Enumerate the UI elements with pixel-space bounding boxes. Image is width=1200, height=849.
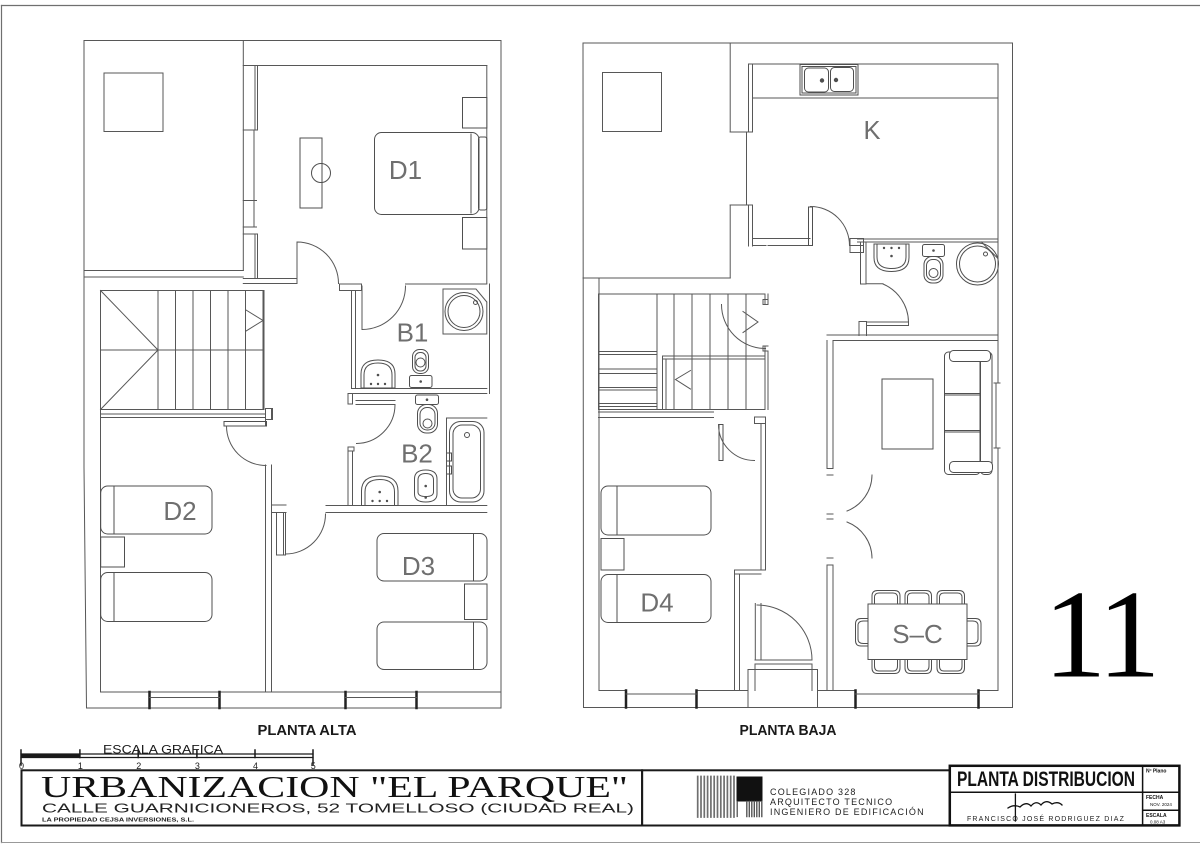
svg-text:0.08 A3: 0.08 A3	[1150, 820, 1166, 825]
svg-text:COLEGIADO 328: COLEGIADO 328	[770, 787, 857, 797]
svg-text:K: K	[863, 117, 880, 145]
svg-text:ARQUITECTO TECNICO: ARQUITECTO TECNICO	[770, 797, 893, 807]
svg-text:LA PROPIEDAD CEJSA INVERSIONE: LA PROPIEDAD CEJSA INVERSIONES, S.L.	[42, 818, 195, 824]
svg-text:ESCALA GRAFICA: ESCALA GRAFICA	[103, 743, 223, 757]
svg-text:PLANTA BAJA: PLANTA BAJA	[740, 722, 837, 739]
svg-text:B2: B2	[401, 439, 433, 469]
svg-text:FECHA: FECHA	[1146, 795, 1164, 801]
svg-text:11: 11	[1043, 566, 1156, 705]
svg-text:CALLE GUARNICIONEROS, 52 TOMEL: CALLE GUARNICIONEROS, 52 TOMELLOSO (CIUD…	[42, 801, 634, 816]
svg-text:FRANCISCO JOSÉ RODRIGUEZ DIAZ: FRANCISCO JOSÉ RODRIGUEZ DIAZ	[967, 814, 1125, 823]
svg-text:D2: D2	[163, 496, 196, 526]
svg-text:URBANIZACION "EL PARQUE": URBANIZACION "EL PARQUE"	[41, 769, 628, 804]
svg-text:D4: D4	[640, 588, 673, 618]
svg-text:S–C: S–C	[892, 619, 943, 649]
svg-text:PLANTA ALTA: PLANTA ALTA	[258, 722, 357, 739]
svg-text:NOV. 2024: NOV. 2024	[1150, 802, 1172, 807]
svg-text:INGENIERO DE EDIFICACIÓN: INGENIERO DE EDIFICACIÓN	[770, 807, 925, 817]
svg-text:PLANTA DISTRIBUCION: PLANTA DISTRIBUCION	[957, 768, 1135, 791]
svg-text:Nº Plano: Nº Plano	[1146, 769, 1166, 775]
svg-text:D1: D1	[389, 155, 422, 185]
svg-text:ESCALA: ESCALA	[1146, 813, 1167, 819]
svg-text:B1: B1	[397, 318, 429, 348]
svg-text:D3: D3	[402, 551, 435, 581]
